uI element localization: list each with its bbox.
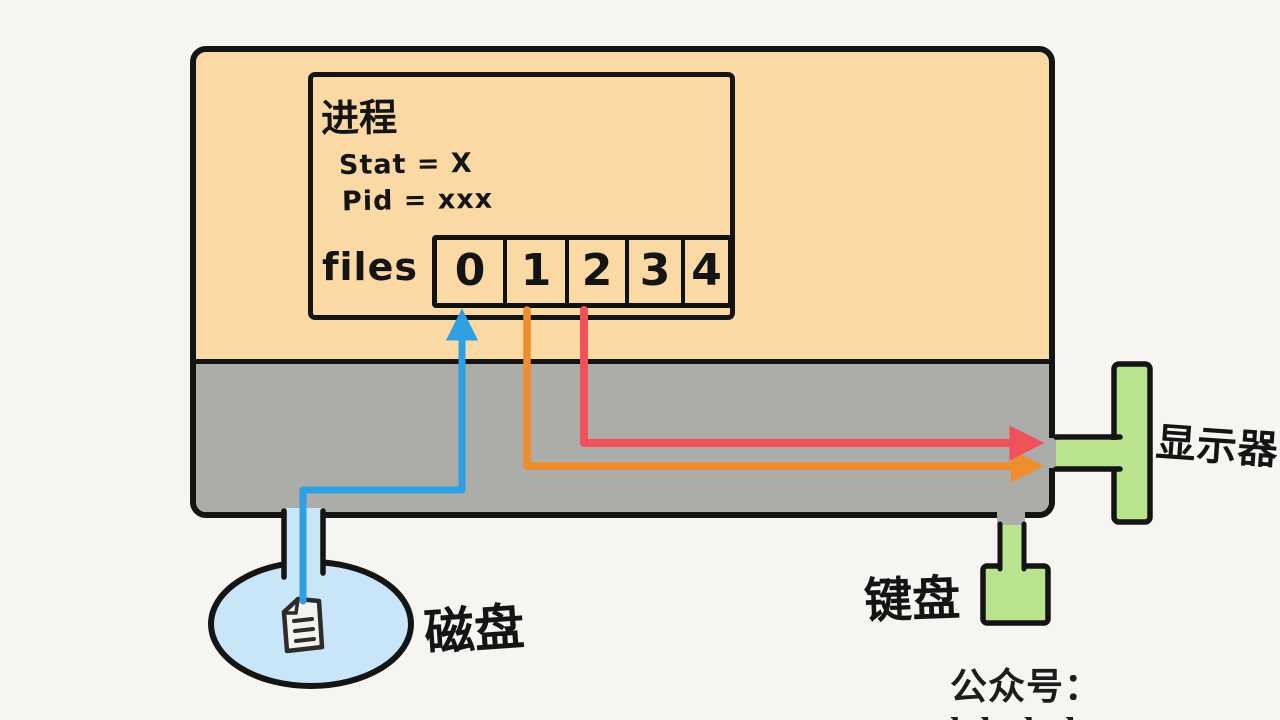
disk-label: 磁盘 [422,587,527,666]
display-shape [1114,364,1150,522]
diagram-canvas: 进程 Stat = X Pid = xxx files 0 1 2 3 4 [0,0,1280,720]
fd0-disk-arrow [303,318,462,601]
document-icon [284,599,322,651]
fd2-display-arrow [584,310,1034,443]
display-label: 显示器 [1154,410,1280,476]
watermark-text: 公众号：labuladong [950,656,1280,720]
keyboard-stem [1002,522,1022,572]
display-port-connector [1044,438,1058,468]
keyboard-label: 键盘 [863,558,961,631]
diagram-shapes [0,0,1280,720]
display-stub [1056,440,1118,467]
keyboard-shape [983,566,1048,623]
